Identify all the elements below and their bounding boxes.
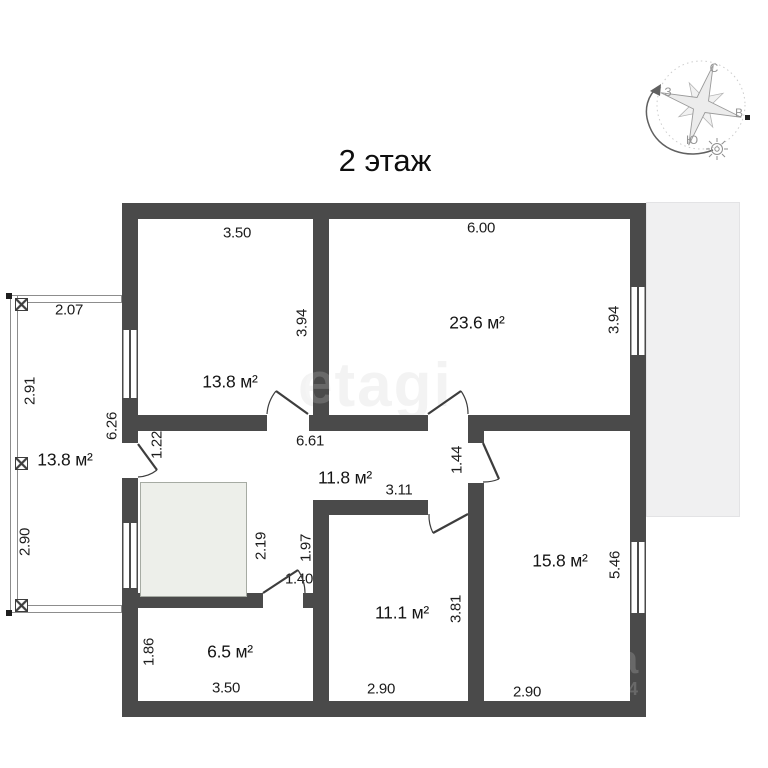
compass-end-dot: [745, 115, 750, 120]
compass-rose: С В Ю З: [646, 53, 753, 160]
door-top-left-room: [267, 391, 308, 414]
compass-south-label: Ю: [686, 133, 698, 147]
compass-east-label: В: [735, 106, 743, 120]
door-stair-hall: [263, 570, 305, 593]
door-balcony: [138, 444, 157, 477]
watermark-corner-number: 4.4: [613, 680, 638, 698]
floor-plan: 2 этаж etagi e a 4.4 13.8 м² 23.6 м² 11.…: [0, 0, 768, 768]
door-right-room: [483, 443, 499, 482]
compass-west-label: З: [664, 85, 671, 99]
plan-overlay: С В Ю З: [0, 0, 768, 768]
watermark-wall-fragment: e: [303, 355, 335, 413]
compass-star-icon: [649, 53, 754, 158]
sun-icon: [706, 138, 728, 160]
compass-north-label: С: [710, 61, 719, 75]
watermark-corner-letter: a: [616, 640, 638, 680]
door-bottom-middle-room: [429, 514, 468, 533]
door-top-right-room: [428, 391, 468, 414]
